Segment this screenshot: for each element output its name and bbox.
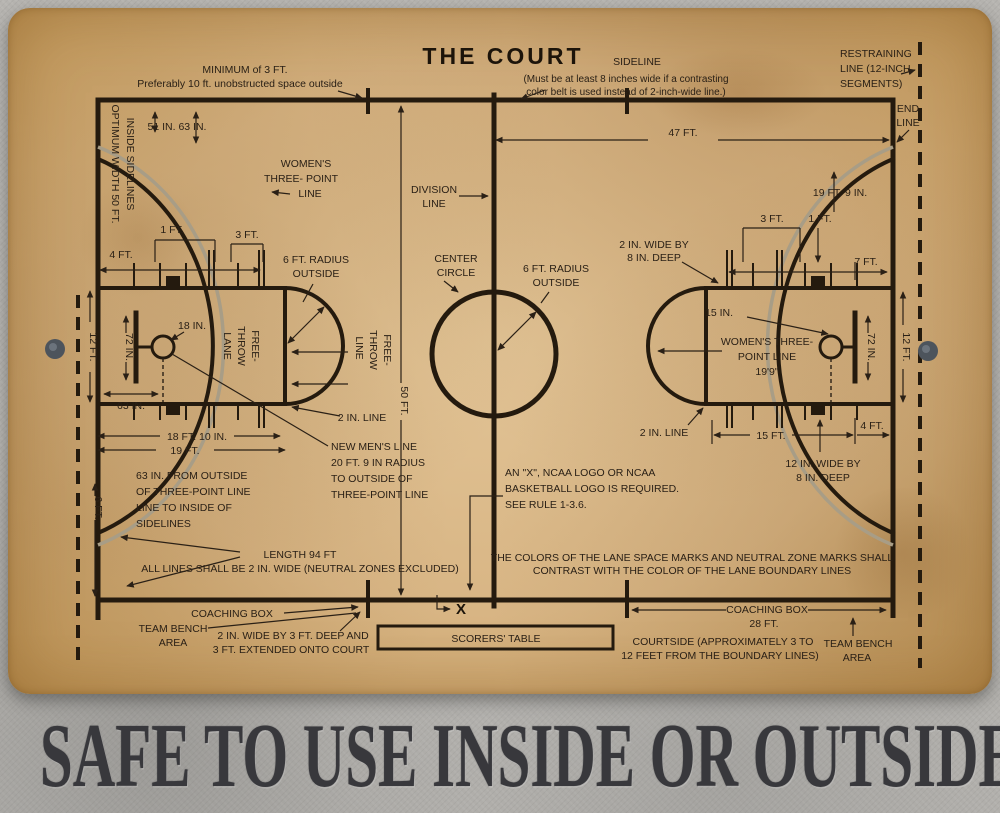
label-bench-right-2: AREA <box>843 652 872 664</box>
label-15in: 15 IN. <box>705 307 733 319</box>
label-7ft: 7 FT. <box>854 256 877 268</box>
label-3ft-right: 3 FT. <box>760 213 783 225</box>
label-sideline-note-2: color belt is used instead of 2-inch-wid… <box>526 87 726 98</box>
label-center-circle-2: CIRCLE <box>437 267 476 279</box>
label-restraining-1: RESTRAINING <box>840 48 912 60</box>
label-newmens-3: TO OUTSIDE OF <box>331 473 412 485</box>
label-coaching-right-dim: 28 FT. <box>749 618 778 630</box>
label-womens-right-1: WOMEN'S THREE- <box>721 336 814 348</box>
label-length-2: ALL LINES SHALL BE 2 IN. WIDE (NEUTRAL Z… <box>141 563 458 575</box>
label-from63-3: LINE TO INSIDE OF <box>136 502 232 514</box>
label-radius-left-1: 6 FT. RADIUS <box>283 254 349 266</box>
label-bench-right-1: TEAM BENCH <box>824 638 893 650</box>
label-19ft: 19 FT. <box>170 445 199 457</box>
mounting-hole-right-highlight <box>922 345 930 353</box>
label-4ft-right: 4 FT. <box>860 420 883 432</box>
poster-scene: THE COURT MINIMUM of 3 FT. Preferably 10… <box>0 0 1000 813</box>
label-coaching-right: COACHING BOX <box>726 604 808 616</box>
label-optimum-2: INSIDE SIDELINES <box>124 118 136 211</box>
label-radius-left-2: OUTSIDE <box>293 268 340 280</box>
label-ft-lane-3: LANE <box>221 332 233 359</box>
label-2x8-1: 2 IN. WIDE BY <box>619 239 688 251</box>
label-51-63: 51 IN. 63 IN. <box>148 121 207 133</box>
label-1ft-left: 1 FT. <box>160 224 183 236</box>
label-ft-lane-2: THROW <box>235 326 247 366</box>
label-scorers-table: SCORERS' TABLE <box>451 633 540 645</box>
label-ncaa-1: AN "X", NCAA LOGO OR NCAA <box>505 467 655 479</box>
label-ft-line-3: LINE <box>353 336 365 359</box>
label-from63-1: 63 IN. FROM OUTSIDE <box>136 470 247 482</box>
label-womens-left-3: LINE <box>298 188 321 200</box>
label-restraining-3: SEGMENTS) <box>840 78 902 90</box>
label-ncaa-3: SEE RULE 1-3.6. <box>505 499 587 511</box>
label-restraining-2: LINE (12-INCH <box>840 63 911 75</box>
label-4ft-left: 4 FT. <box>109 249 132 261</box>
rim-right <box>820 336 842 358</box>
label-minimum-2: Preferably 10 ft. unobstructed space out… <box>137 78 343 90</box>
label-12ft-left: 12 FT. <box>87 332 99 361</box>
label-ft-lane-1: FREE- <box>249 330 261 362</box>
label-12x8-1: 12 IN. WIDE BY <box>785 458 860 470</box>
label-womens-left-2: THREE- POINT <box>264 173 339 185</box>
label-newmens-1: NEW MEN'S LINE <box>331 441 417 453</box>
label-division-2: LINE <box>422 198 445 210</box>
label-note-left-2: 3 FT. EXTENDED ONTO COURT <box>213 644 370 656</box>
label-minimum-1: MINIMUM of 3 FT. <box>202 64 287 76</box>
court-diagram: THE COURT MINIMUM of 3 FT. Preferably 10… <box>0 0 1000 813</box>
label-bench-left-2: AREA <box>159 637 188 649</box>
label-72in-right: 72 IN. <box>865 333 877 361</box>
page-title: THE COURT <box>422 43 583 69</box>
label-ncaa-2: BASKETBALL LOGO IS REQUIRED. <box>505 483 679 495</box>
label-19ft9: 19 FT. 9 IN. <box>813 187 867 199</box>
slogan-text: SAFE TO USE INSIDE OR OUTSIDE. <box>40 704 960 809</box>
label-x-mark: X <box>456 601 466 618</box>
label-sideline: SIDELINE <box>613 56 661 68</box>
label-2in-line-left: 2 IN. LINE <box>338 412 386 424</box>
label-bench-left-1: TEAM BENCH <box>139 623 208 635</box>
label-50ft: 50 FT. <box>398 386 410 415</box>
free-throw-circle-left <box>285 288 343 404</box>
label-ft-line-1: FREE- <box>381 334 393 366</box>
label-18ft10: 18 FT. 10 IN. <box>167 431 227 443</box>
label-2in-line-right: 2 IN. LINE <box>640 427 688 439</box>
label-newmens-4: THREE-POINT LINE <box>331 489 428 501</box>
label-radius-center-2: OUTSIDE <box>533 277 580 289</box>
label-endline-1: END <box>897 103 920 115</box>
label-womens-right-3: 19'9" <box>755 366 779 378</box>
label-72in-left: 72 IN. <box>123 333 135 361</box>
label-radius-center-1: 6 FT. RADIUS <box>523 263 589 275</box>
label-endline-2: LINE <box>896 117 919 129</box>
label-note-left-1: 2 IN. WIDE BY 3 FT. DEEP AND <box>217 630 369 642</box>
rim-left <box>152 336 174 358</box>
label-womens-right-2: POINT LINE <box>738 351 796 363</box>
label-3ft-left: 3 FT. <box>235 229 258 241</box>
mounting-hole-left-highlight <box>49 343 57 351</box>
label-12x8-2: 8 IN. DEEP <box>796 472 850 484</box>
label-15ft: 15 FT. <box>756 430 785 442</box>
label-2x8-2: 8 IN. DEEP <box>627 252 681 264</box>
womens-left-leader <box>272 192 290 194</box>
label-womens-left-1: WOMEN'S <box>281 158 331 170</box>
label-from63-4: SIDELINES <box>136 518 191 530</box>
free-throw-circle-right <box>648 288 706 404</box>
label-length-1: LENGTH 94 FT <box>264 549 338 561</box>
label-18in: 18 IN. <box>178 320 206 332</box>
label-courtside-2: 12 FEET FROM THE BOUNDARY LINES) <box>621 650 819 662</box>
label-6ft-left: 6 FT. <box>92 496 104 519</box>
label-coaching-left: COACHING BOX <box>191 608 273 620</box>
label-division-1: DIVISION <box>411 184 457 196</box>
label-1ft-right: 1 FT. <box>808 213 831 225</box>
label-from63-2: OF THREE-POINT LINE <box>136 486 251 498</box>
label-63in: 63 IN. <box>117 400 145 412</box>
label-colors-1: THE COLORS OF THE LANE SPACE MARKS AND N… <box>491 552 894 564</box>
label-newmens-2: 20 FT. 9 IN RADIUS <box>331 457 425 469</box>
label-optimum-1: OPTIMUM WIDTH 50 FT. <box>109 105 121 224</box>
label-ft-line-2: THROW <box>367 330 379 370</box>
label-sideline-note-1: (Must be at least 8 inches wide if a con… <box>523 74 728 85</box>
label-colors-2: CONTRAST WITH THE COLOR OF THE LANE BOUN… <box>533 565 851 577</box>
label-center-circle-1: CENTER <box>434 253 478 265</box>
label-courtside-1: COURTSIDE (APPROXIMATELY 3 TO <box>633 636 814 648</box>
label-47ft: 47 FT. <box>668 127 697 139</box>
label-12ft-right: 12 FT. <box>900 332 912 361</box>
